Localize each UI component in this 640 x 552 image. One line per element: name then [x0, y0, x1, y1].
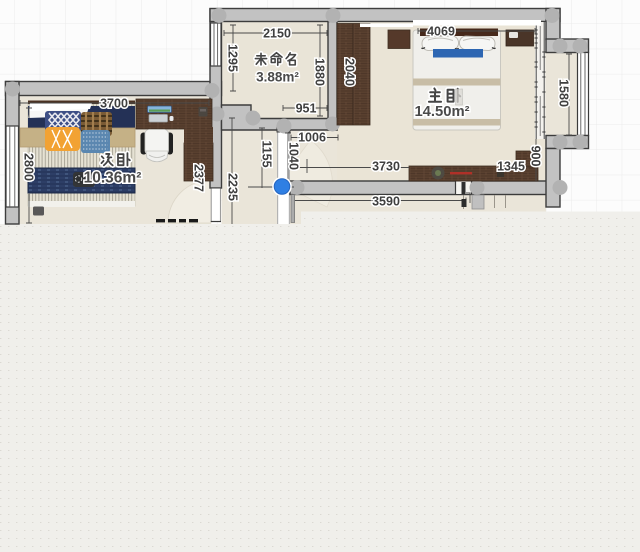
svg-text:3700: 3700 — [100, 97, 128, 111]
svg-text:1345: 1345 — [497, 160, 525, 174]
svg-text:3590: 3590 — [372, 195, 400, 209]
svg-text:1580: 1580 — [557, 79, 571, 107]
svg-text:2377: 2377 — [192, 164, 206, 192]
svg-text:3730: 3730 — [372, 160, 400, 174]
svg-text:2800: 2800 — [22, 153, 36, 181]
svg-text:1006: 1006 — [298, 131, 326, 145]
svg-text:3.88m²: 3.88m² — [256, 70, 299, 85]
svg-text:1880: 1880 — [313, 58, 327, 86]
svg-text:1155: 1155 — [260, 140, 274, 167]
svg-text:2150: 2150 — [263, 27, 291, 41]
svg-text:2235: 2235 — [226, 173, 240, 201]
svg-text:1295: 1295 — [226, 44, 240, 72]
svg-text:2040: 2040 — [343, 58, 357, 86]
svg-text:10.36m²: 10.36m² — [84, 170, 142, 187]
svg-text:951: 951 — [296, 102, 317, 116]
svg-text:4069: 4069 — [427, 25, 455, 39]
svg-text:14.50m²: 14.50m² — [414, 104, 469, 120]
svg-text:900: 900 — [529, 146, 543, 167]
svg-text:1040: 1040 — [287, 142, 301, 170]
